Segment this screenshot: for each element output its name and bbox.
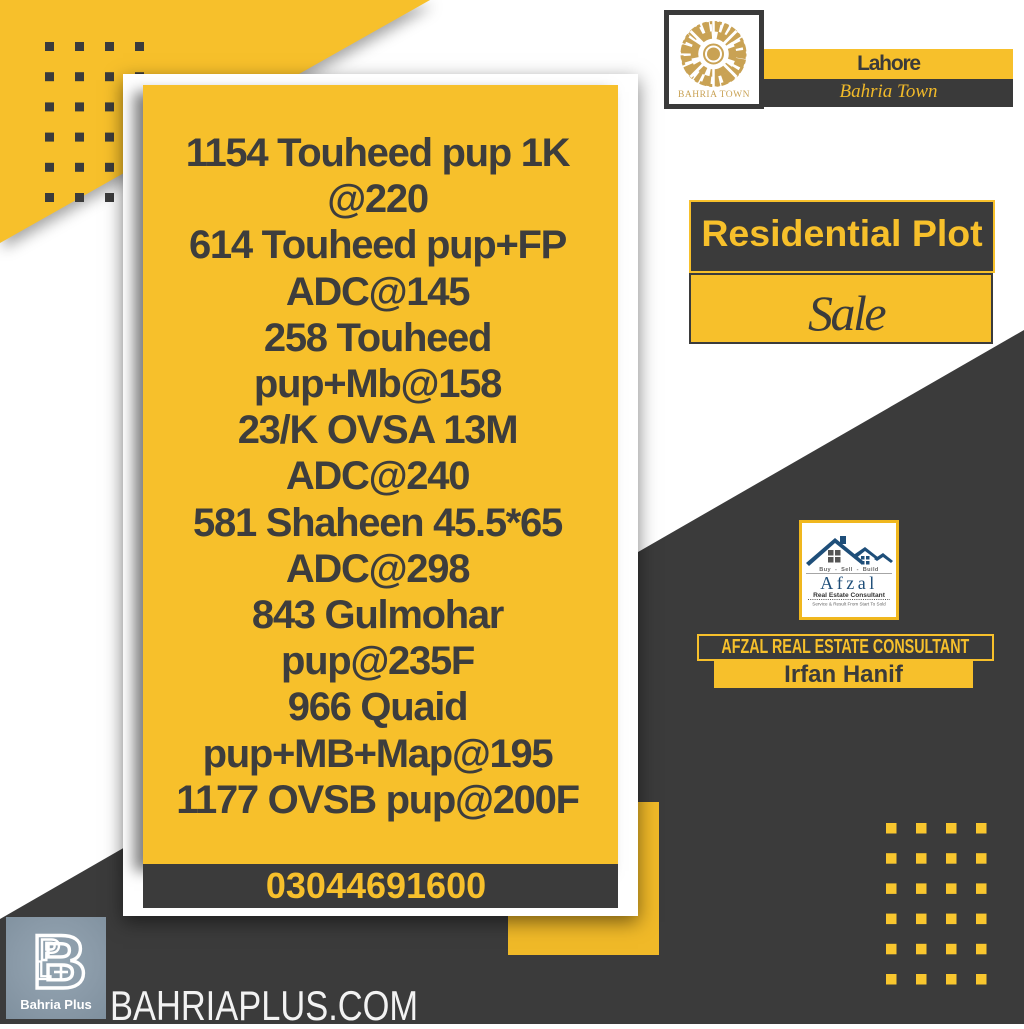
svg-text:BAHRIA TOWN: BAHRIA TOWN — [678, 90, 750, 100]
svg-text:L: L — [36, 957, 51, 985]
svg-text:Bahria Plus: Bahria Plus — [20, 997, 92, 1012]
svg-text:Service & Result From Start To: Service & Result From Start To Sold — [812, 602, 886, 607]
svg-text:Real Estate Consultant: Real Estate Consultant — [813, 592, 886, 599]
svg-text:Afzal: Afzal — [820, 573, 877, 593]
